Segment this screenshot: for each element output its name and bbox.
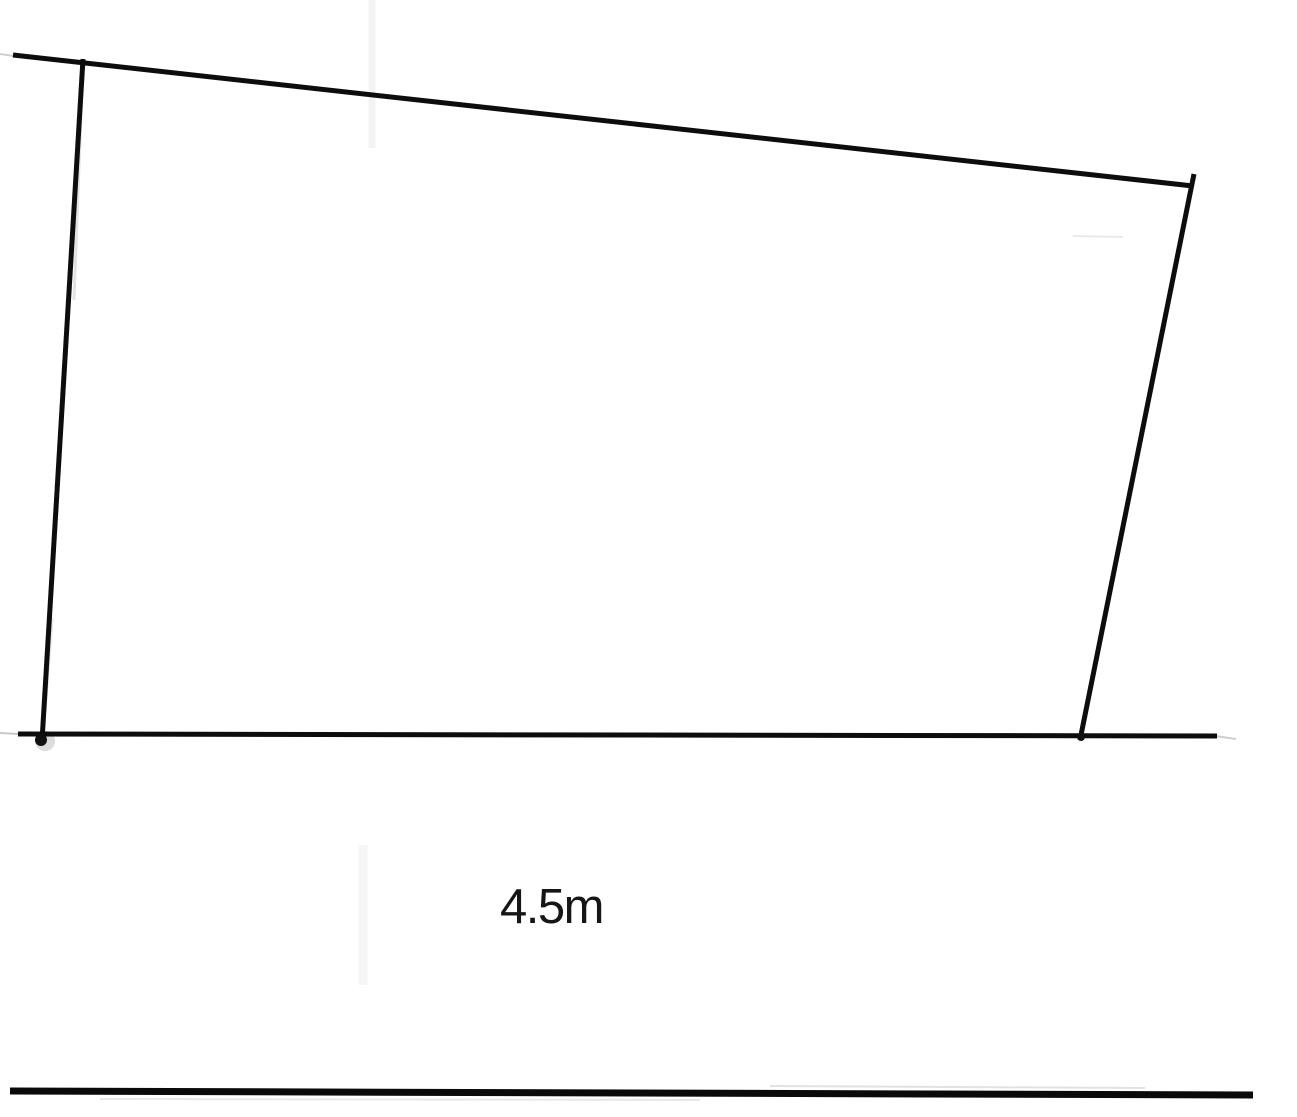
ground-line-tail bbox=[1215, 736, 1236, 739]
right-edge bbox=[1080, 174, 1194, 740]
ground-line-lead-in bbox=[0, 733, 18, 734]
bottom-left-junction bbox=[35, 734, 47, 746]
top-edge-lead-in bbox=[0, 54, 14, 56]
page-bottom-rule bbox=[10, 1091, 1253, 1095]
page-rule-noise-above bbox=[770, 1086, 1145, 1088]
diagram-canvas bbox=[0, 0, 1297, 1117]
scan-artifact-horizontal-right bbox=[1073, 236, 1123, 237]
page-rule-noise-below bbox=[100, 1099, 700, 1100]
ground-line bbox=[18, 734, 1217, 736]
bottom-right-junction bbox=[1077, 733, 1085, 741]
scanned-page: 4.5m bbox=[0, 0, 1297, 1117]
top-edge bbox=[13, 55, 1193, 186]
left-edge bbox=[42, 59, 83, 741]
dimension-label: 4.5m bbox=[500, 883, 603, 932]
